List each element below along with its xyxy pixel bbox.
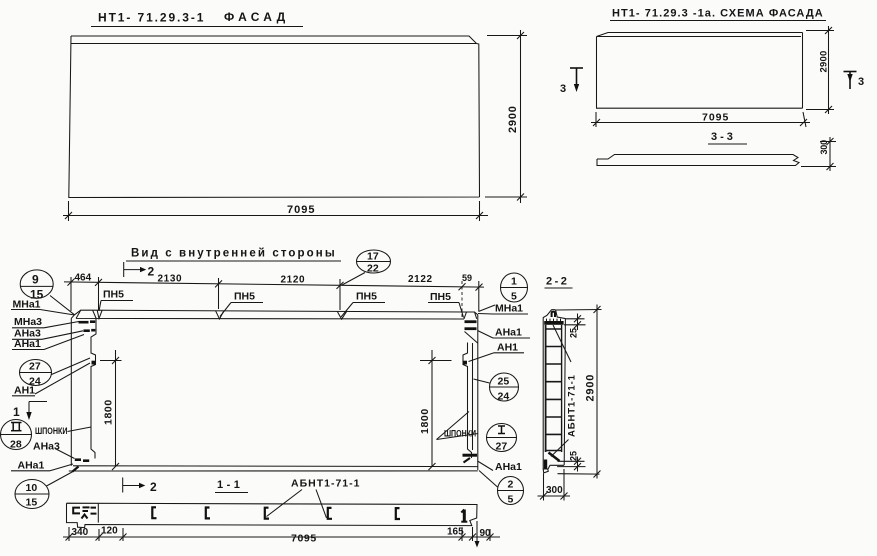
svg-text:Вид с внутренней стороны: Вид с внутренней стороны: [131, 248, 337, 260]
svg-text:ШПОНКИ: ШПОНКИ: [35, 426, 68, 437]
svg-text:3-3: 3-3: [711, 131, 736, 143]
svg-text:3: 3: [560, 83, 566, 95]
svg-text:17: 17: [367, 251, 379, 263]
svg-text:25: 25: [498, 376, 510, 388]
svg-text:2-2: 2-2: [546, 276, 569, 288]
svg-text:24: 24: [498, 391, 510, 403]
svg-text:АН1: АН1: [14, 385, 35, 397]
svg-text:1800: 1800: [103, 399, 115, 425]
svg-text:НТ1- 71.29.3-1: НТ1- 71.29.3-1: [98, 11, 205, 25]
svg-text:2900: 2900: [585, 374, 597, 402]
svg-text:7095: 7095: [291, 533, 317, 545]
svg-text:15: 15: [26, 497, 38, 509]
svg-text:АНа1: АНа1: [495, 327, 522, 339]
svg-text:5: 5: [508, 494, 514, 506]
svg-text:АНа1: АНа1: [495, 461, 522, 473]
svg-text:22: 22: [367, 263, 379, 275]
svg-text:АБНТ1-71-1: АБНТ1-71-1: [291, 478, 360, 490]
svg-text:ПН5: ПН5: [234, 291, 255, 303]
svg-text:2: 2: [150, 480, 157, 494]
svg-text:2: 2: [148, 265, 155, 279]
svg-text:МНа3: МНа3: [14, 316, 42, 328]
svg-text:ПН5: ПН5: [356, 291, 377, 303]
svg-text:300: 300: [546, 485, 563, 496]
svg-text:9: 9: [32, 273, 39, 287]
svg-text:2120: 2120: [281, 275, 306, 286]
svg-text:7095: 7095: [702, 112, 729, 124]
svg-text:1: 1: [511, 276, 517, 288]
svg-text:АНа1: АНа1: [18, 460, 45, 472]
svg-text:3: 3: [858, 76, 864, 88]
svg-text:АНа1: АНа1: [14, 338, 41, 350]
svg-text:2130: 2130: [158, 274, 183, 285]
svg-text:27: 27: [496, 441, 508, 453]
svg-text:МНа1: МНа1: [495, 303, 523, 315]
svg-text:2122: 2122: [408, 274, 433, 285]
svg-text:НТ1- 71.29.3 -1а. СХЕМА ФАСАДА: НТ1- 71.29.3 -1а. СХЕМА ФАСАДА: [612, 8, 824, 20]
svg-text:25: 25: [569, 451, 579, 461]
svg-text:ФАСАД: ФАСАД: [224, 10, 289, 24]
svg-text:ПН5: ПН5: [103, 289, 124, 301]
svg-text:28: 28: [10, 439, 22, 451]
svg-text:2900: 2900: [819, 51, 830, 73]
svg-text:1: 1: [13, 405, 20, 419]
svg-text:464: 464: [75, 273, 92, 284]
svg-text:7095: 7095: [287, 204, 315, 216]
svg-text:340: 340: [72, 527, 89, 538]
svg-text:90: 90: [480, 528, 492, 539]
svg-text:2: 2: [508, 479, 514, 491]
svg-text:165: 165: [447, 527, 464, 538]
svg-text:300: 300: [819, 140, 829, 155]
svg-text:АНа3: АНа3: [33, 441, 60, 453]
svg-text:10: 10: [26, 482, 38, 494]
svg-text:27: 27: [29, 361, 41, 373]
svg-text:5: 5: [511, 291, 517, 303]
svg-text:2900: 2900: [507, 105, 519, 133]
svg-text:АБНТ1-71-1: АБНТ1-71-1: [567, 374, 578, 437]
svg-text:120: 120: [101, 526, 118, 537]
svg-text:ПН5: ПН5: [430, 291, 451, 303]
svg-text:25: 25: [569, 328, 579, 338]
svg-text:1-1: 1-1: [217, 479, 243, 491]
svg-text:АН1: АН1: [497, 342, 518, 354]
svg-text:МНа1: МНа1: [13, 299, 41, 311]
svg-text:1800: 1800: [419, 408, 431, 434]
svg-text:59: 59: [462, 273, 472, 283]
